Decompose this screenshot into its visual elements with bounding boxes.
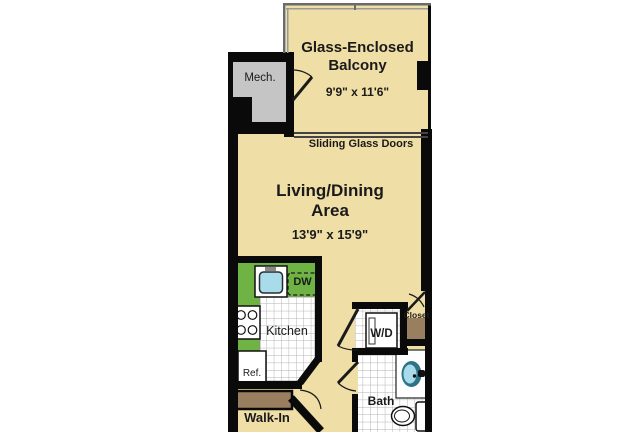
bath-label: Bath: [364, 394, 398, 408]
refrigerator-label: Ref.: [238, 368, 266, 380]
bath-faucet: [418, 370, 425, 377]
kitchen-right-wall: [315, 256, 322, 362]
balcony-left-glass-outer: [283, 3, 286, 53]
balcony-top-glass-inner: [286, 8, 428, 10]
kitchen-top-wall: [228, 256, 322, 263]
walk-in-label: Walk-In: [234, 410, 300, 425]
wd-bottom-wall: [352, 348, 408, 355]
living-dining-label: Living/Dining Area: [240, 181, 420, 221]
kitchen-label: Kitchen: [258, 324, 316, 339]
right-wall-upper: [421, 129, 432, 291]
walkin-shelf: [230, 391, 292, 409]
balcony-label: Glass-Enclosed Balcony: [287, 39, 428, 74]
washer-dryer-label: W/D: [366, 328, 397, 342]
dishwasher-label: DW: [288, 276, 317, 289]
balcony-label-line2: Balcony: [287, 57, 428, 75]
wd-top-wall: [352, 302, 408, 309]
kitchen-bottom-wall: [228, 381, 302, 389]
living-dining-dimensions: 13'9" x 15'9": [240, 227, 420, 242]
mech-room-label: Mech.: [233, 72, 287, 86]
living-dining-label-line1: Living/Dining: [240, 181, 420, 201]
kitchen-faucet: [265, 267, 276, 271]
balcony-dimensions: 9'9" x 11'6": [287, 85, 428, 99]
balcony-top-mullion: [354, 3, 356, 10]
closet-floor: [407, 318, 428, 339]
bath-area: [358, 350, 429, 432]
closet-label: Closet: [402, 310, 431, 320]
balcony-top-glass-outer: [283, 3, 431, 6]
bath-sink-basin: [404, 365, 417, 384]
stove-burner: [248, 311, 257, 320]
floor-plan: Glass-Enclosed Balcony 9'9" x 11'6" Slid…: [0, 0, 640, 432]
sliding-glass-doors-label: Sliding Glass Doors: [294, 138, 428, 151]
kitchen-sink-basin: [260, 272, 283, 293]
bath-sink-drain: [413, 374, 416, 377]
sliding-door-track-outer: [294, 132, 428, 134]
stove-burner: [248, 326, 257, 335]
bath-left-wall: [352, 394, 358, 432]
living-dining-label-line2: Area: [240, 201, 420, 221]
balcony-label-line1: Glass-Enclosed: [287, 39, 428, 57]
wall-stub: [284, 126, 294, 137]
